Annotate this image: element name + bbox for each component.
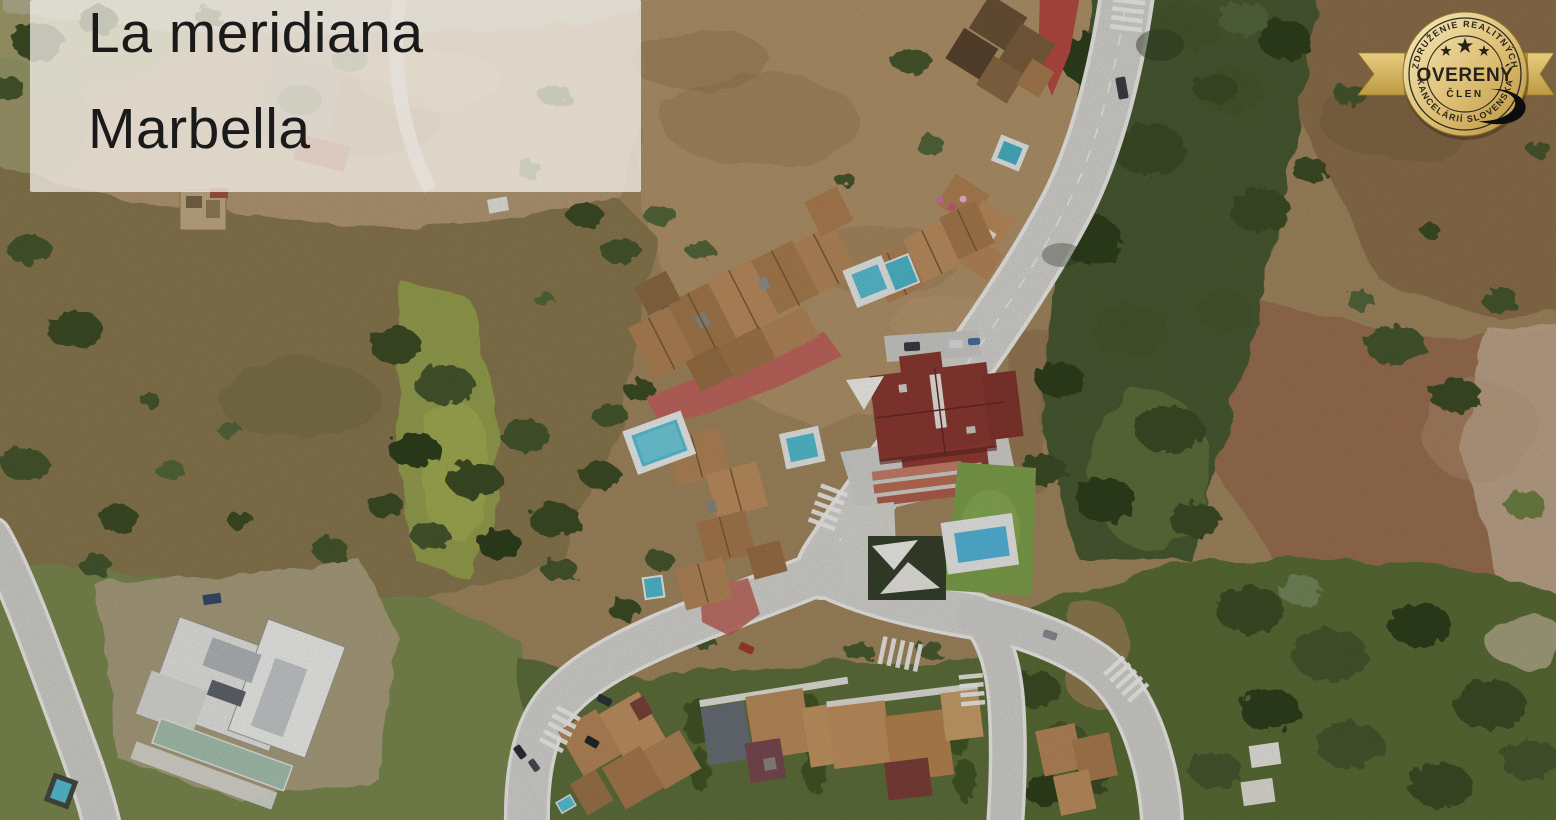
screenshot-root: La meridiana Marbella OVERENÝ ČLEN ZDRUŽ… [0,0,1556,820]
badge-main-text: OVERENÝ [1416,64,1513,86]
verified-badge: OVERENÝ ČLEN ZDRUŽENIE REALITNÝCH KANCEL… [1348,0,1556,160]
location-subtitle: Marbella [88,98,311,161]
title-card: La meridiana Marbella [30,0,641,192]
badge-sub-text: ČLEN [1446,87,1483,100]
location-title: La meridiana [88,2,424,65]
